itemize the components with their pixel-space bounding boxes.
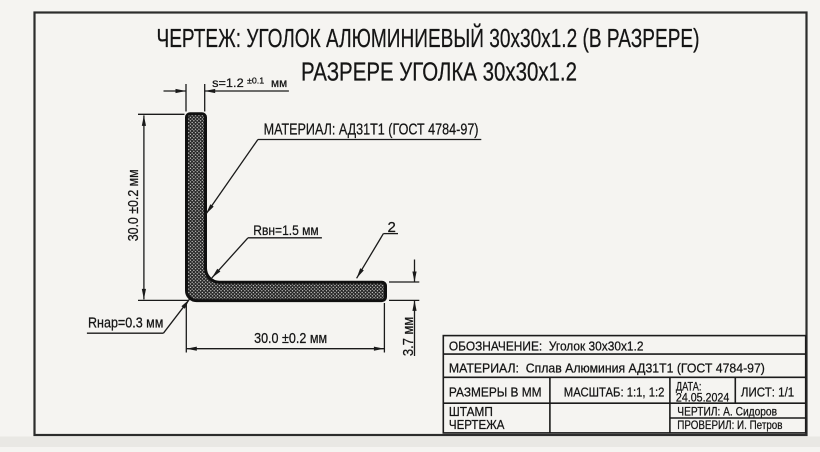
svg-text:мм: мм [271,76,287,90]
svg-text:30.0 ±0.2 мм: 30.0 ±0.2 мм [125,169,142,241]
svg-text:ПРОВЕРИЛ: И. Петров: ПРОВЕРИЛ: И. Петров [677,418,782,432]
svg-text:МАТЕРИАЛ: АД31Т1 (ГОСТ 4784-97: МАТЕРИАЛ: АД31Т1 (ГОСТ 4784-97) [264,122,479,139]
svg-text:МАТЕРИАЛ: Сплав Алюминия АД31: МАТЕРИАЛ: Сплав Алюминия АД31Т1 (ГОСТ 47… [449,361,765,376]
svg-text:±0.1: ±0.1 [247,76,264,86]
svg-text:ОБОЗНАЧЕНИЕ: Уголок 30x30x1.2: ОБОЗНАЧЕНИЕ: Уголок 30x30x1.2 [449,338,644,353]
svg-text:3.7 мм: 3.7 мм [400,317,417,356]
svg-text:30.0 ±0.2 мм: 30.0 ±0.2 мм [254,330,327,347]
svg-text:24.05.2024: 24.05.2024 [676,391,730,405]
svg-text:ЧЕРТЕЖА: ЧЕРТЕЖА [449,417,505,432]
svg-text:s=1.2: s=1.2 [212,76,244,90]
svg-text:Rнар=0.3 мм: Rнар=0.3 мм [88,316,163,332]
svg-text:РАЗМЕРЫ В ММ: РАЗМЕРЫ В ММ [449,385,542,400]
svg-text:МАСШТАБ: 1:1, 1:2: МАСШТАБ: 1:1, 1:2 [564,385,665,400]
svg-text:ЧЕРТИЛ: А. Сидоров: ЧЕРТИЛ: А. Сидоров [677,404,777,418]
svg-text:ЛИСТ: 1/1: ЛИСТ: 1/1 [741,385,794,400]
svg-text:РАЗРЕРЕ УГОЛКА 30x30x1.2: РАЗРЕРЕ УГОЛКА 30x30x1.2 [301,58,577,86]
svg-text:ЧЕРТЕЖ: УГОЛОК АЛЮМИНИЕВЫЙ 30x: ЧЕРТЕЖ: УГОЛОК АЛЮМИНИЕВЫЙ 30x30x1.2 (В … [157,23,700,53]
svg-text:Rвн=1.5 мм: Rвн=1.5 мм [253,222,318,238]
